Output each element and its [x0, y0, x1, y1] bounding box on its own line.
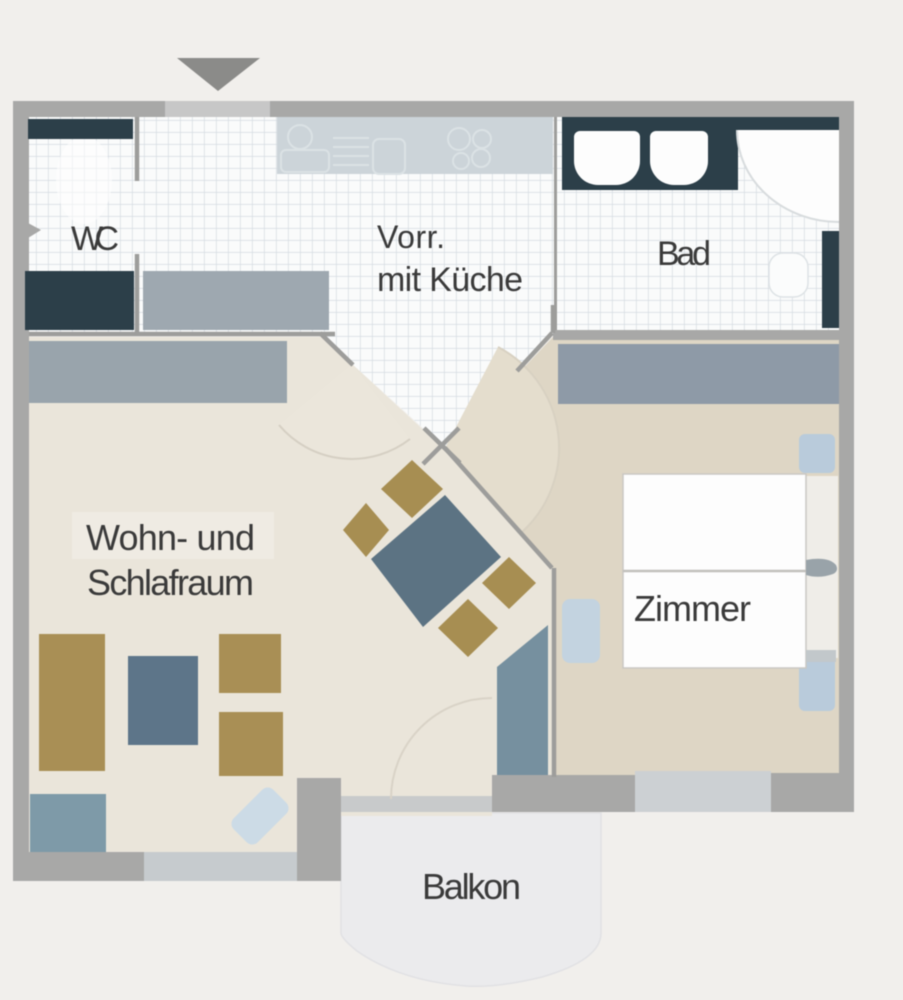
svg-text:Wohn- und: Wohn- und: [86, 517, 255, 558]
svg-text:Balkon: Balkon: [422, 866, 521, 907]
svg-text:mit Küche: mit Küche: [377, 261, 523, 299]
svg-text:Bad: Bad: [657, 235, 711, 273]
svg-text:Vorr.: Vorr.: [377, 219, 445, 255]
svg-text:Schlafraum: Schlafraum: [87, 562, 254, 603]
svg-text:Zimmer: Zimmer: [634, 588, 751, 629]
svg-text:WC: WC: [71, 220, 119, 258]
